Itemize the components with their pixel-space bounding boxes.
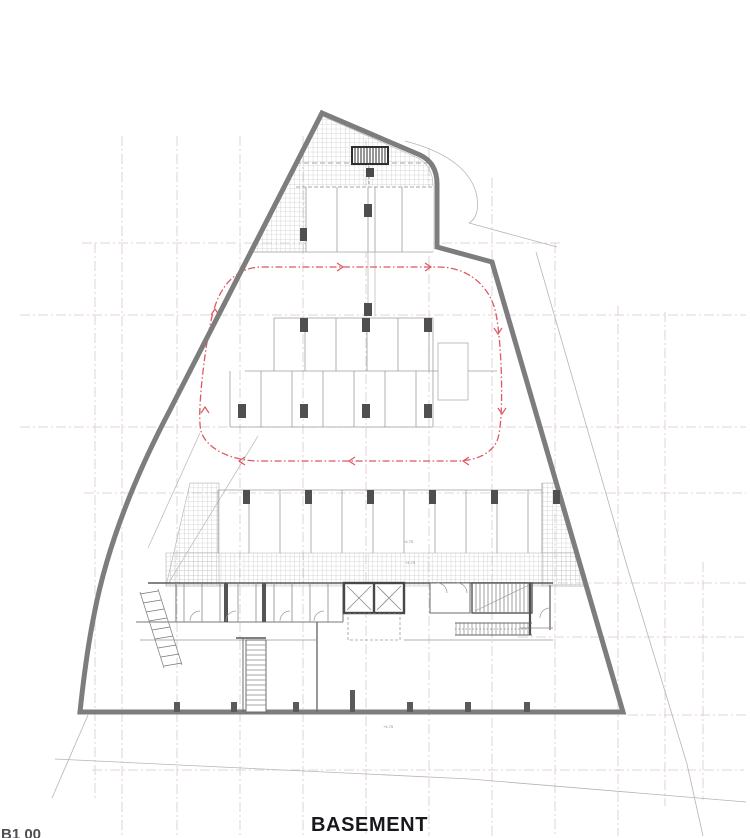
level-mark: +4.75 <box>403 539 413 544</box>
elevators <box>344 583 404 640</box>
level-mark: +4.75 <box>405 560 415 565</box>
secondary-stair <box>236 638 266 712</box>
columns <box>174 204 560 712</box>
sheet-code-label: B1 00 <box>1 826 41 838</box>
top-parking-bay-area <box>306 186 433 252</box>
level-mark: +4.75 <box>383 724 393 729</box>
plan-title: BASEMENT <box>311 814 428 837</box>
core-room <box>430 583 470 613</box>
floor-plan-sheet: BASEMENT B1 00 +4.75 +4.75 +4.75 <box>0 0 750 838</box>
floor-plan-drawing <box>0 0 750 838</box>
